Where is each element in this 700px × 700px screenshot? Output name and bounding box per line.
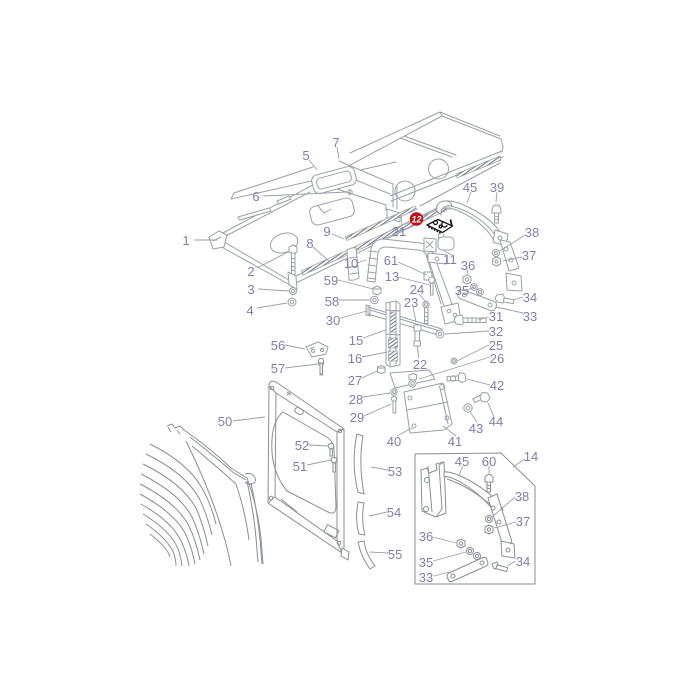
svg-text:42: 42: [490, 378, 504, 393]
svg-text:15: 15: [349, 333, 363, 348]
svg-text:23: 23: [404, 295, 418, 310]
svg-text:21: 21: [392, 224, 406, 239]
svg-text:40: 40: [387, 434, 401, 449]
svg-text:45: 45: [455, 454, 469, 469]
svg-text:41: 41: [448, 434, 462, 449]
svg-text:45: 45: [463, 180, 477, 195]
svg-text:37: 37: [522, 248, 536, 263]
svg-text:52: 52: [295, 438, 309, 453]
svg-text:55: 55: [388, 547, 402, 562]
svg-text:11: 11: [443, 252, 457, 267]
svg-text:59: 59: [324, 273, 338, 288]
svg-text:2: 2: [247, 264, 254, 279]
svg-text:13: 13: [385, 269, 399, 284]
svg-text:6: 6: [252, 189, 259, 204]
svg-text:38: 38: [515, 489, 529, 504]
svg-text:1: 1: [182, 233, 189, 248]
svg-text:61: 61: [384, 253, 398, 268]
svg-text:56: 56: [271, 338, 285, 353]
svg-text:50: 50: [218, 414, 232, 429]
svg-text:36: 36: [419, 529, 433, 544]
svg-text:22: 22: [413, 357, 427, 372]
svg-text:57: 57: [271, 361, 285, 376]
svg-text:12: 12: [411, 215, 421, 225]
svg-text:3: 3: [247, 282, 254, 297]
svg-text:38: 38: [525, 225, 539, 240]
svg-text:35: 35: [419, 555, 433, 570]
svg-text:8: 8: [306, 236, 313, 251]
svg-text:7: 7: [332, 135, 339, 150]
svg-text:37: 37: [516, 514, 530, 529]
svg-text:36: 36: [461, 258, 475, 273]
svg-text:27: 27: [348, 373, 362, 388]
svg-text:60: 60: [482, 454, 496, 469]
svg-text:58: 58: [325, 294, 339, 309]
svg-text:10: 10: [344, 256, 358, 271]
svg-text:29: 29: [350, 410, 364, 425]
svg-text:4: 4: [246, 303, 253, 318]
svg-text:54: 54: [387, 505, 401, 520]
svg-text:51: 51: [293, 459, 307, 474]
svg-text:43: 43: [469, 421, 483, 436]
svg-text:44: 44: [489, 414, 503, 429]
svg-text:32: 32: [489, 324, 503, 339]
svg-text:33: 33: [419, 570, 433, 585]
svg-text:35: 35: [455, 283, 469, 298]
svg-text:5: 5: [302, 148, 309, 163]
svg-text:34: 34: [523, 290, 537, 305]
svg-text:14: 14: [524, 449, 538, 464]
svg-text:31: 31: [489, 309, 503, 324]
svg-text:39: 39: [490, 180, 504, 195]
svg-text:53: 53: [388, 464, 402, 479]
svg-text:26: 26: [490, 351, 504, 366]
svg-text:34: 34: [516, 554, 530, 569]
svg-text:33: 33: [523, 309, 537, 324]
svg-text:30: 30: [326, 313, 340, 328]
svg-text:28: 28: [349, 392, 363, 407]
svg-text:16: 16: [348, 351, 362, 366]
svg-text:9: 9: [323, 224, 330, 239]
